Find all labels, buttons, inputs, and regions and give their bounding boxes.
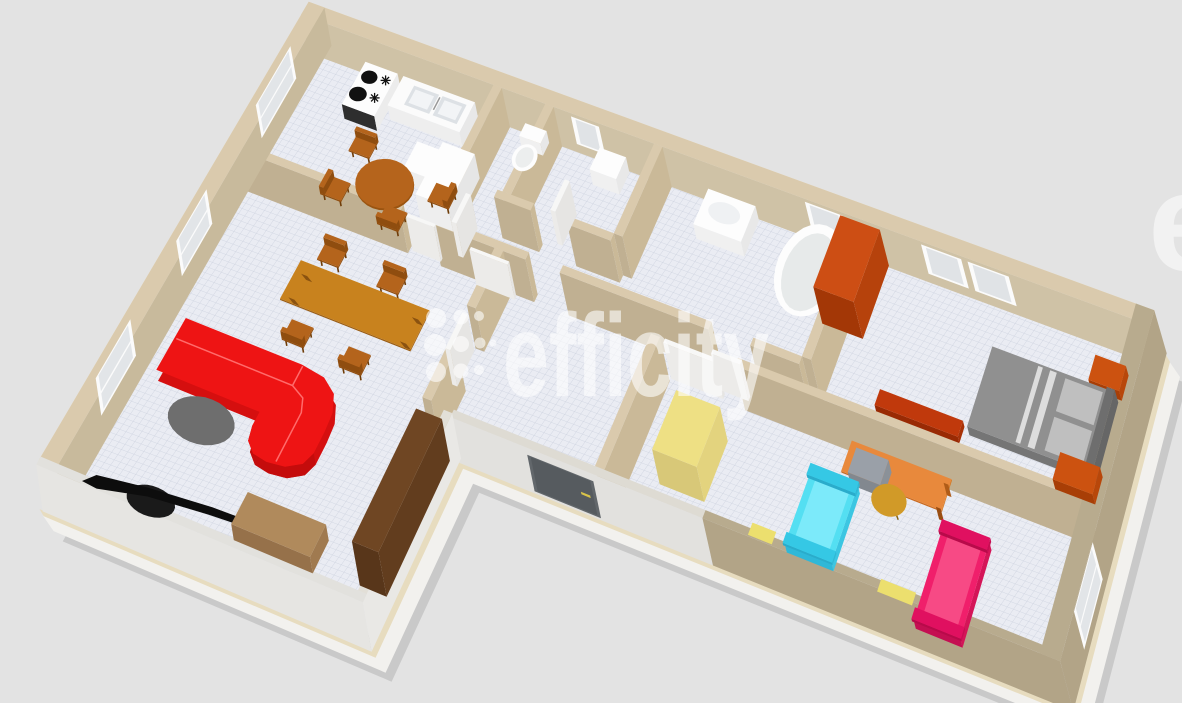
- svg-text:efficity: efficity: [503, 290, 769, 422]
- svg-text:ef: ef: [1148, 143, 1182, 300]
